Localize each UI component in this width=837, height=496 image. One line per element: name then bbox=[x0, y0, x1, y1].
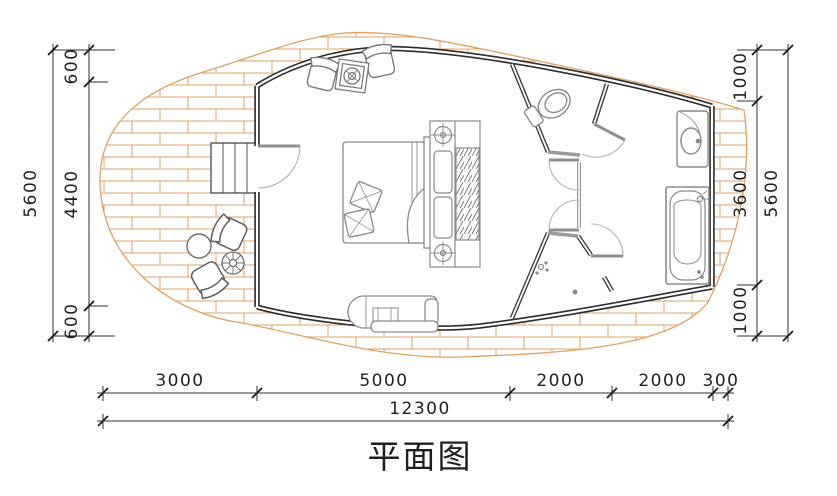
dim-right-3600: 3600 bbox=[731, 168, 751, 217]
dim-left-600-top: 600 bbox=[62, 48, 82, 85]
entrance-stairs bbox=[211, 143, 258, 193]
side-table bbox=[335, 59, 369, 93]
outdoor-round-table bbox=[187, 234, 211, 258]
dim-left-600-bottom: 600 bbox=[62, 303, 82, 340]
dim-right-outer: 5600 bbox=[762, 168, 782, 217]
dim-bottom-3000: 3000 bbox=[155, 371, 204, 391]
drawing-title: 平面图 bbox=[368, 437, 473, 476]
dim-bottom-total: 12300 bbox=[389, 399, 451, 419]
console-table bbox=[348, 296, 438, 332]
floor-drain bbox=[573, 290, 577, 294]
dim-bottom-5000: 5000 bbox=[359, 371, 408, 391]
vanity-sink bbox=[677, 111, 708, 167]
headboard-console bbox=[430, 121, 480, 267]
dim-right-1000-bottom: 1000 bbox=[731, 285, 751, 334]
wardrobe-hanging-rail bbox=[456, 148, 479, 240]
double-bed bbox=[343, 137, 431, 248]
dim-left-4400: 4400 bbox=[62, 169, 82, 218]
dim-left-outer: 5600 bbox=[21, 168, 41, 217]
floor-plan-page: 5600 600 4400 600 1000 3600 1000 5600 30… bbox=[0, 0, 837, 496]
dim-bottom-300: 300 bbox=[703, 371, 740, 391]
outdoor-parasol-table bbox=[222, 252, 244, 274]
tub-faucet-icon bbox=[697, 196, 702, 201]
bathtub bbox=[666, 187, 709, 284]
floor-plan-svg: 5600 600 4400 600 1000 3600 1000 5600 30… bbox=[0, 0, 837, 496]
dim-bottom-2000-a: 2000 bbox=[536, 371, 585, 391]
dim-right-1000-top: 1000 bbox=[731, 51, 751, 100]
dim-bottom-2000-b: 2000 bbox=[638, 371, 687, 391]
